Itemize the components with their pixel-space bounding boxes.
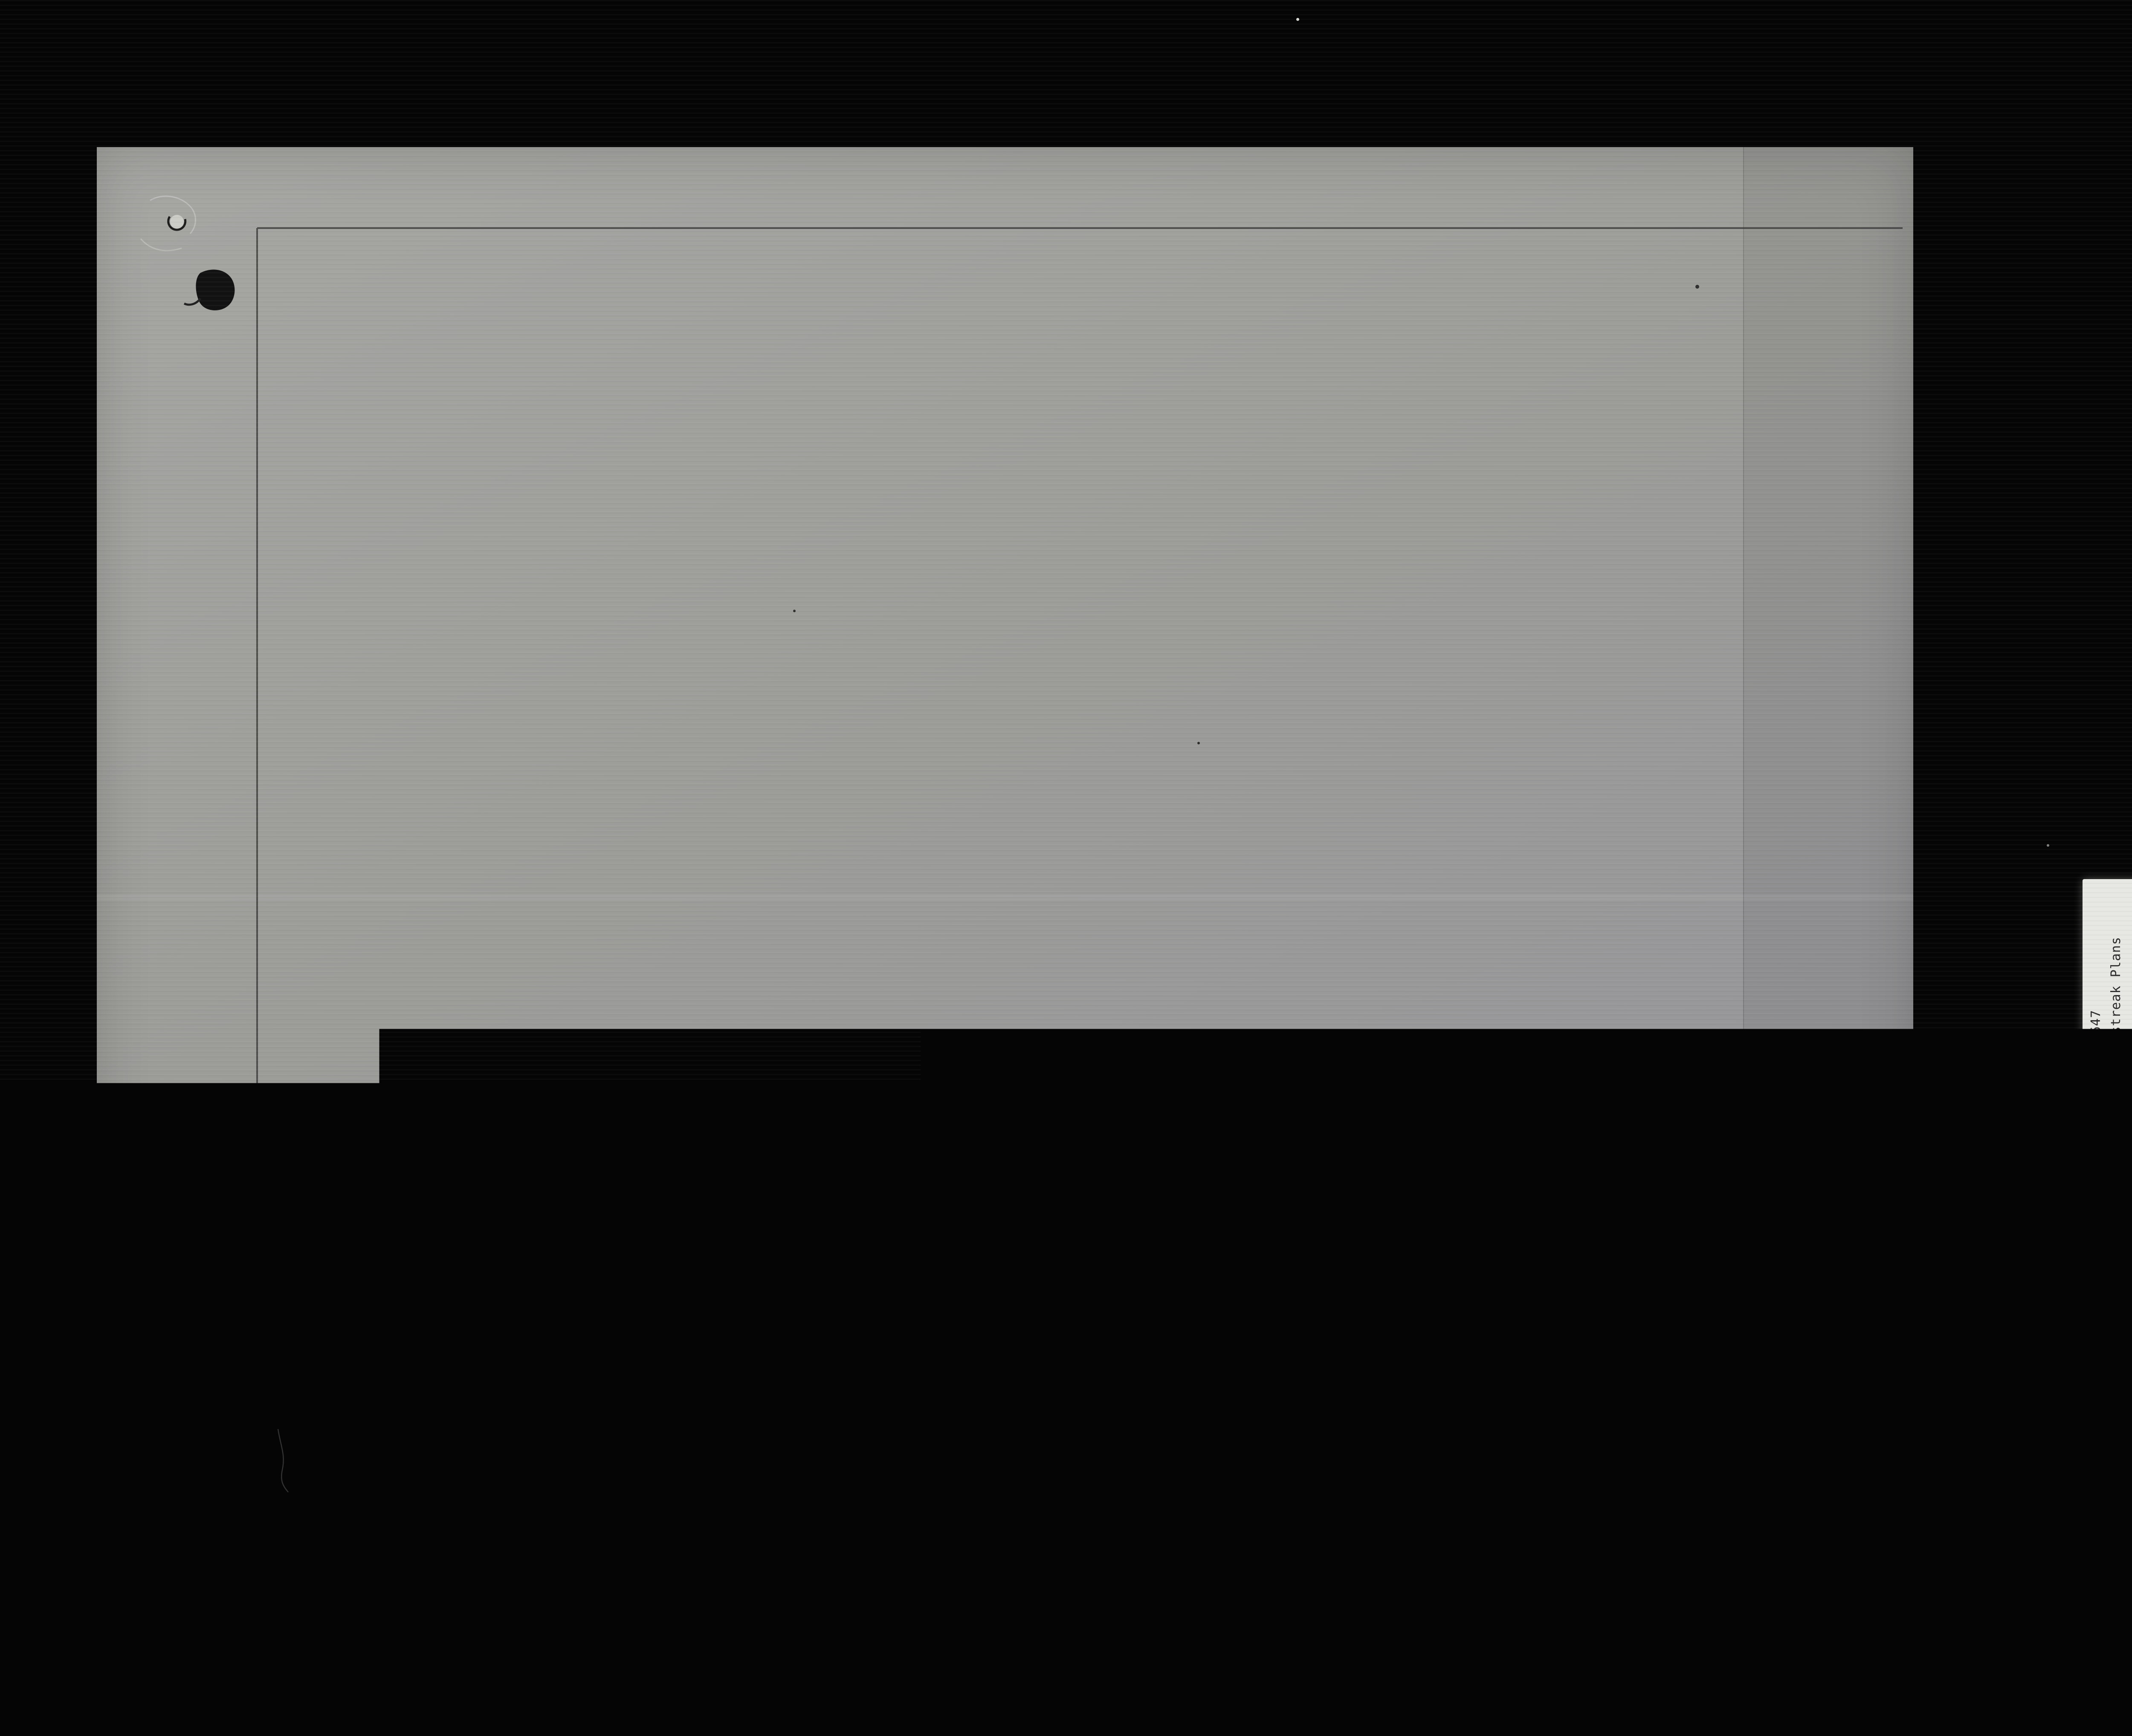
diffuser-bottom-right-annotation: 8"∅ Neck Size Ceiling Diffuser Model E3-… xyxy=(1255,1612,1445,1685)
film-edge-mask xyxy=(0,1702,2132,1736)
furnace-plenum-box xyxy=(1216,1349,1258,1403)
furnace-plenum-label: Furnace Plenum xyxy=(1089,1352,1183,1396)
film-speck xyxy=(2047,844,2049,847)
diffuser-bottom-left-annotation: 8"∅ Neck Size Ceiling Diffuser Model E3-… xyxy=(1030,1611,1215,1684)
film-stain xyxy=(141,196,288,1492)
interior-wall-ticks xyxy=(988,1522,1587,1539)
dust-speck xyxy=(793,610,796,612)
gas-line xyxy=(1234,1182,1244,1400)
diffuser-right-annotation: 4" Neck Size Half Round Ceiling Diffuser… xyxy=(1463,1418,1642,1519)
duct-size-bottom-left: 16"x6" xyxy=(1095,1682,1164,1702)
frame-index-label: 1 OF / DE xyxy=(1878,1597,2073,1668)
dust-speck xyxy=(1695,285,1699,289)
dust-speck xyxy=(721,1378,725,1382)
dust-speck xyxy=(1747,1392,1750,1396)
parks-canada-text: PARKS CANADA PARCS CANADA xyxy=(2094,1498,2132,1622)
film-speck xyxy=(1296,18,1299,21)
duct-size-branch-right: 10" x 4" xyxy=(1275,1452,1339,1470)
dust-speck xyxy=(350,1391,353,1395)
diffuser-left-annotation: 4" Neck Size Half Round Ceiling Diffuser… xyxy=(1004,1419,1179,1519)
plenum-leader-arrow xyxy=(1158,1392,1212,1396)
dust-speck xyxy=(594,1143,596,1146)
propane-leader-arrow xyxy=(1239,1193,1260,1213)
dust-speck xyxy=(1197,742,1200,744)
archive-reference-text: RG 84, A-2-a, vol. 1647 File/dossier K36… xyxy=(2086,896,2132,1197)
dust-speck xyxy=(461,1574,463,1577)
archive-label-strip: RG 84, A-2-a, vol. 1647 File/dossier K36… xyxy=(2083,879,2132,1632)
gas-mark-2: G xyxy=(1226,1323,1235,1335)
gas-mark-1: G xyxy=(1225,1273,1234,1287)
wall-opening-ticks xyxy=(945,1426,967,1469)
microfilm-frame: Propane Gas line G G Furnace Plenum 4" N… xyxy=(0,0,2132,1736)
dust-speck xyxy=(678,1681,681,1683)
dust-speck xyxy=(1532,1304,1534,1306)
interior-wall xyxy=(977,1525,1628,1536)
